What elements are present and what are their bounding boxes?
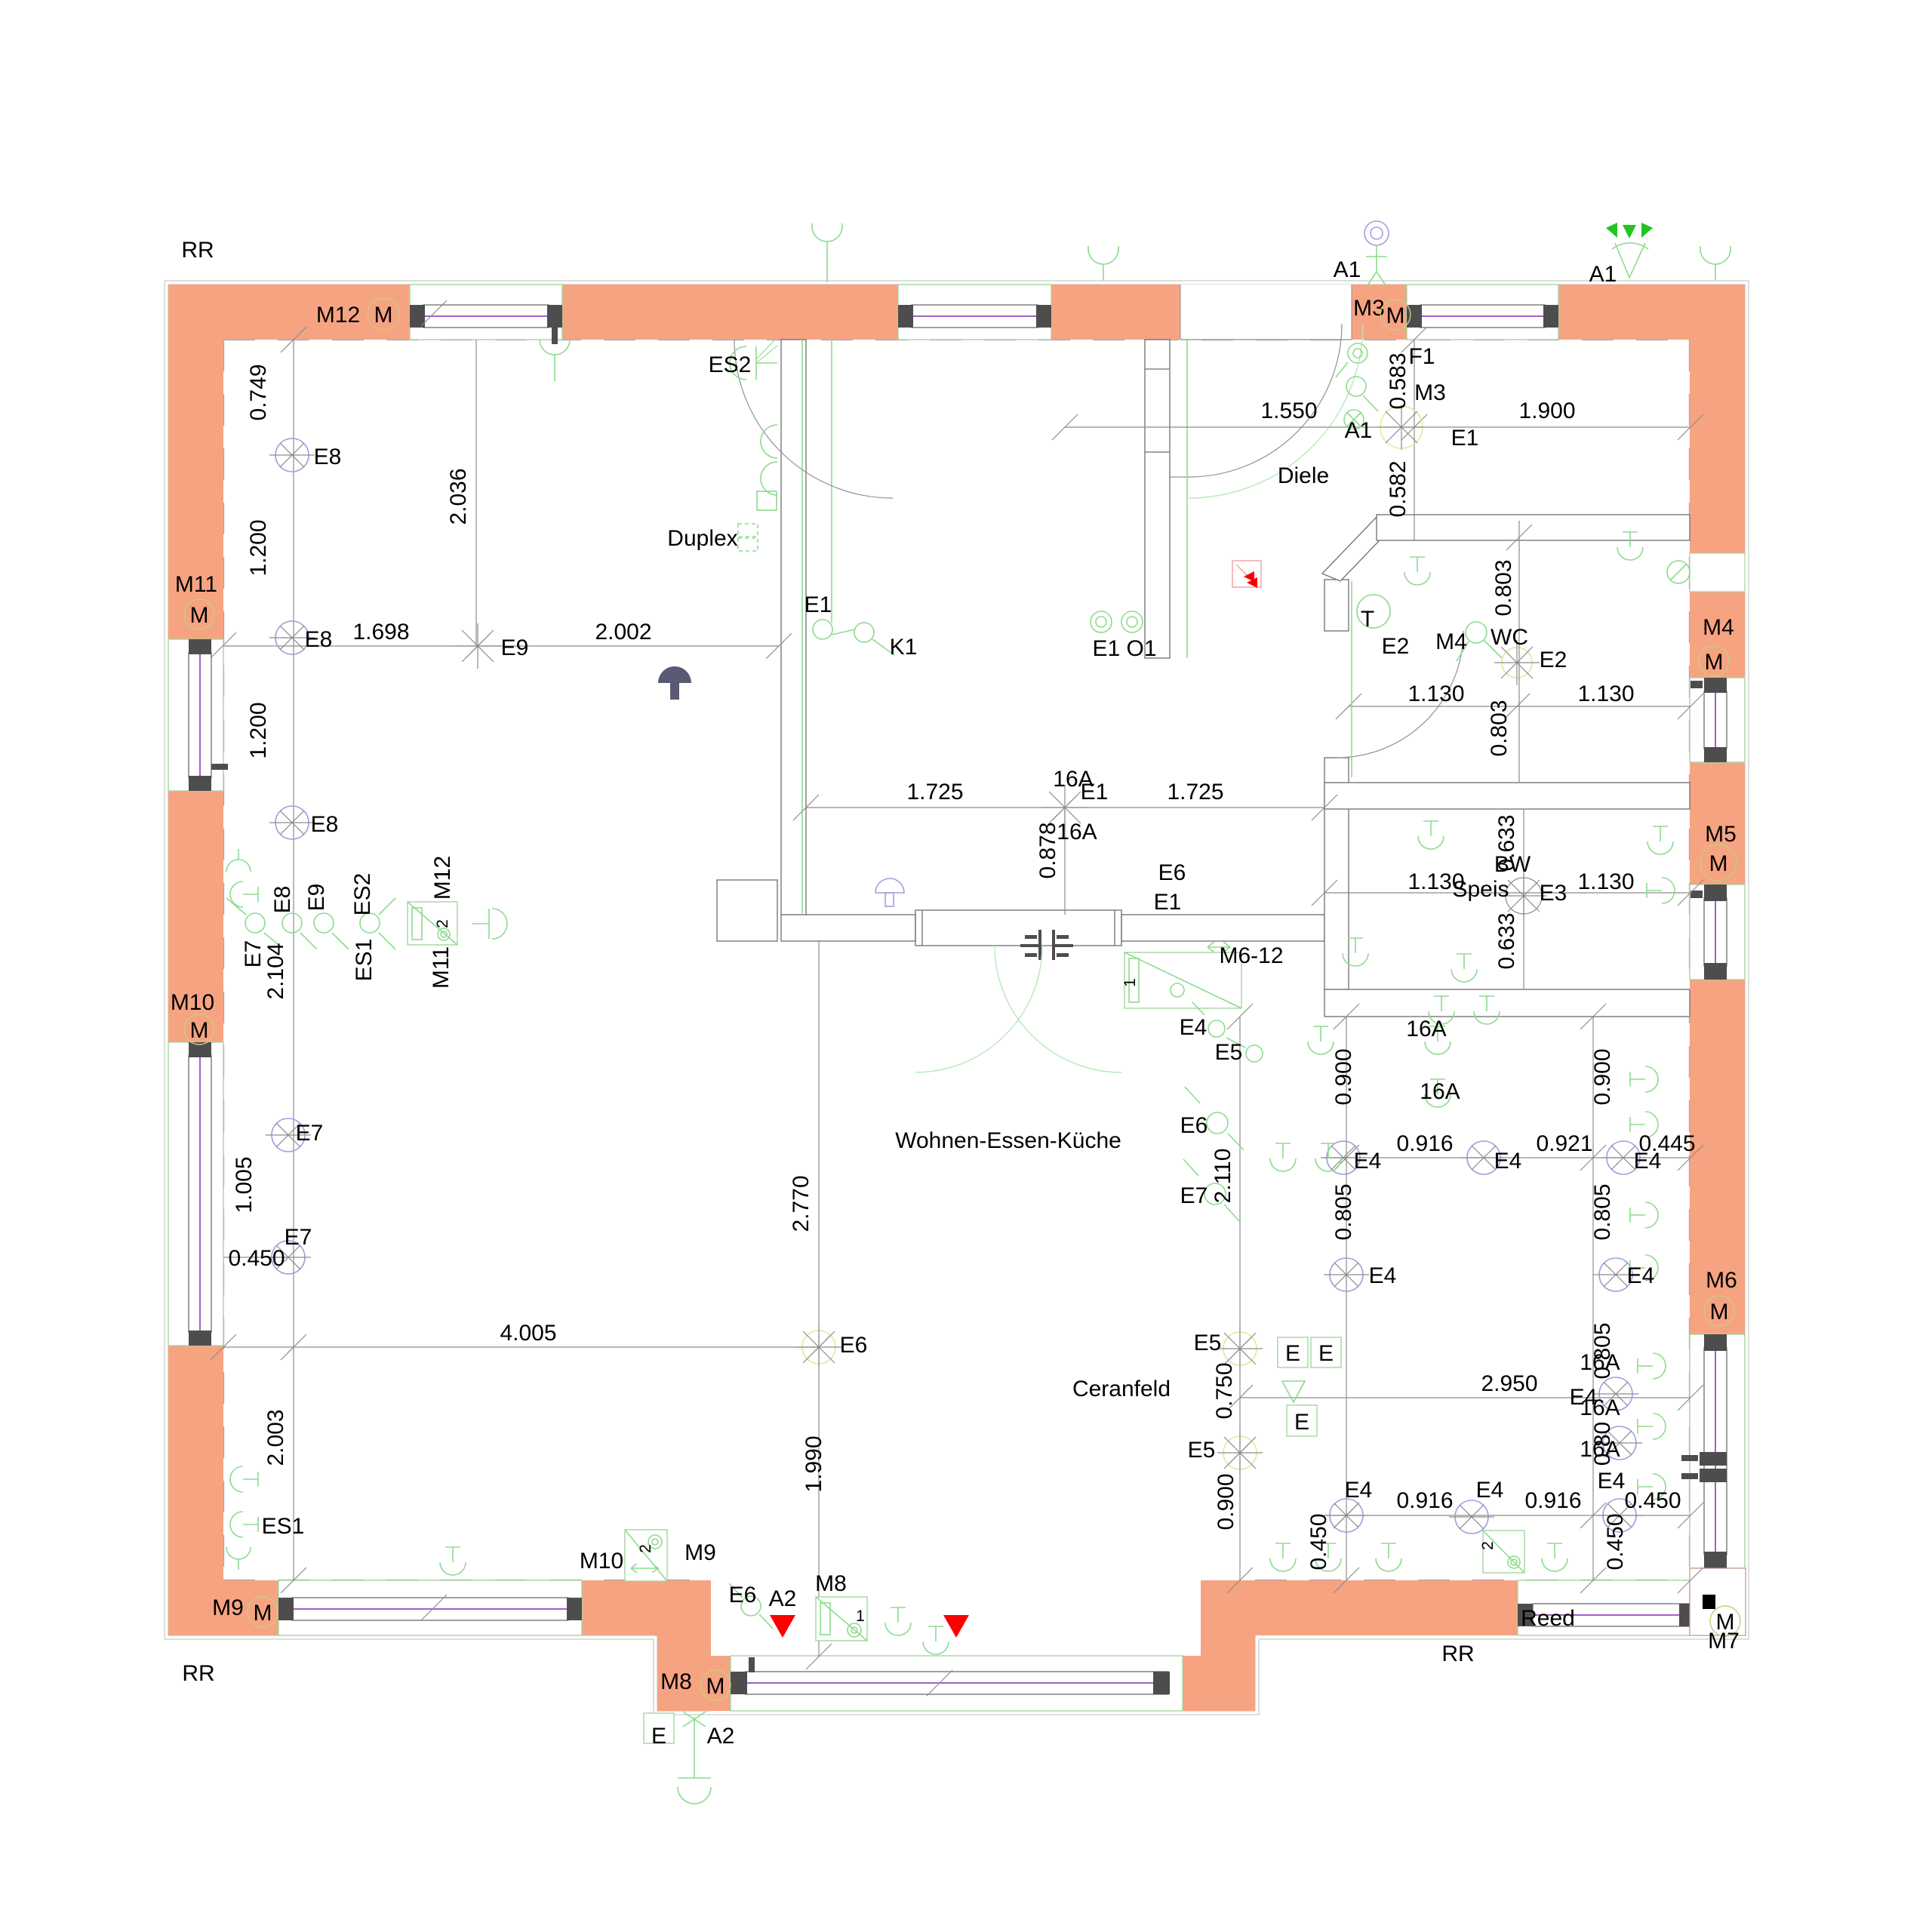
svg-text:A1: A1 (1345, 418, 1373, 443)
svg-text:T: T (1361, 607, 1374, 632)
svg-text:2: 2 (434, 919, 451, 928)
svg-text:0.900: 0.900 (1590, 1048, 1615, 1105)
svg-text:16A: 16A (1057, 820, 1097, 844)
svg-text:E4: E4 (1345, 1478, 1373, 1503)
svg-text:0.916: 0.916 (1524, 1488, 1581, 1513)
svg-text:16A: 16A (1053, 767, 1093, 792)
svg-text:1.130: 1.130 (1407, 869, 1464, 894)
svg-text:WC: WC (1491, 625, 1528, 650)
svg-text:M8: M8 (660, 1669, 692, 1694)
svg-text:E8: E8 (270, 886, 295, 914)
svg-text:E4: E4 (1627, 1263, 1655, 1288)
svg-text:Duplex: Duplex (667, 526, 737, 551)
svg-text:0.916: 0.916 (1396, 1488, 1453, 1513)
svg-text:M5: M5 (1705, 822, 1737, 847)
svg-text:E7: E7 (296, 1121, 324, 1146)
svg-text:1.005: 1.005 (232, 1156, 257, 1213)
svg-text:2.770: 2.770 (789, 1175, 814, 1232)
svg-text:2.950: 2.950 (1481, 1371, 1537, 1396)
svg-text:2: 2 (637, 1544, 654, 1553)
svg-text:16A: 16A (1580, 1395, 1620, 1420)
svg-text:A1: A1 (1589, 262, 1617, 287)
svg-text:0.921: 0.921 (1536, 1131, 1592, 1156)
svg-text:RR: RR (181, 238, 214, 263)
svg-text:E8: E8 (311, 812, 339, 837)
svg-text:M12: M12 (430, 856, 455, 900)
svg-text:E: E (1285, 1341, 1300, 1366)
svg-text:E4: E4 (1354, 1149, 1382, 1174)
svg-text:E7: E7 (241, 940, 266, 968)
svg-text:M11: M11 (175, 572, 217, 597)
svg-text:M: M (706, 1674, 725, 1699)
svg-text:0.803: 0.803 (1487, 700, 1512, 756)
svg-text:E9: E9 (304, 884, 329, 912)
svg-text:M12: M12 (316, 303, 360, 328)
svg-text:E6: E6 (840, 1333, 868, 1358)
svg-text:E5: E5 (1215, 1040, 1243, 1065)
svg-text:Diele: Diele (1278, 463, 1329, 488)
svg-text:16A: 16A (1580, 1350, 1620, 1375)
svg-text:2: 2 (1479, 1541, 1497, 1550)
svg-text:1.900: 1.900 (1518, 398, 1575, 423)
svg-text:0.916: 0.916 (1396, 1131, 1453, 1156)
svg-text:M: M (1710, 1300, 1729, 1324)
svg-text:E2: E2 (1382, 634, 1410, 659)
svg-text:1.698: 1.698 (352, 620, 409, 645)
svg-text:Reed: Reed (1521, 1606, 1575, 1631)
svg-text:M: M (254, 1601, 272, 1626)
svg-text:1.130: 1.130 (1577, 869, 1634, 894)
svg-text:M: M (190, 1018, 209, 1043)
svg-text:M: M (1705, 650, 1724, 675)
svg-text:2.110: 2.110 (1211, 1149, 1235, 1204)
svg-text:M: M (190, 603, 209, 628)
svg-text:E1: E1 (1451, 426, 1479, 451)
svg-text:M4: M4 (1703, 615, 1734, 640)
svg-text:1.990: 1.990 (801, 1435, 826, 1492)
svg-text:1.200: 1.200 (246, 519, 271, 576)
svg-text:1.130: 1.130 (1577, 681, 1634, 706)
svg-text:0.450: 0.450 (1624, 1488, 1681, 1513)
svg-text:M6-12: M6-12 (1219, 943, 1283, 968)
svg-text:0.80: 0.80 (1590, 1422, 1615, 1466)
svg-text:0.582: 0.582 (1386, 460, 1411, 517)
svg-text:M11: M11 (429, 946, 454, 989)
svg-text:4.005: 4.005 (500, 1321, 556, 1346)
svg-text:0.445: 0.445 (1638, 1131, 1695, 1156)
svg-text:E2: E2 (1540, 648, 1567, 672)
svg-text:E5: E5 (1188, 1438, 1216, 1463)
svg-text:0.750: 0.750 (1212, 1362, 1237, 1419)
svg-text:0.805: 0.805 (1331, 1183, 1356, 1240)
svg-text:E1 O1: E1 O1 (1092, 636, 1156, 661)
svg-text:E: E (1318, 1341, 1334, 1366)
svg-text:E5: E5 (1194, 1331, 1222, 1355)
svg-text:M9: M9 (212, 1595, 244, 1620)
svg-text:E7: E7 (1180, 1183, 1208, 1208)
svg-text:1: 1 (856, 1607, 865, 1625)
svg-text:E4: E4 (1369, 1263, 1397, 1288)
svg-text:0.900: 0.900 (1331, 1048, 1356, 1105)
svg-text:M: M (1709, 851, 1728, 876)
svg-text:ES1: ES1 (352, 939, 377, 982)
svg-text:2.003: 2.003 (263, 1409, 288, 1466)
svg-text:RR: RR (1441, 1641, 1474, 1666)
svg-text:0.749: 0.749 (246, 364, 271, 420)
svg-text:A1: A1 (1334, 257, 1361, 282)
svg-text:1.200: 1.200 (246, 702, 271, 758)
svg-text:2.002: 2.002 (595, 620, 651, 645)
svg-text:2.104: 2.104 (263, 943, 288, 999)
svg-text:E8: E8 (314, 445, 342, 469)
svg-text:Ceranfeld: Ceranfeld (1072, 1377, 1171, 1401)
svg-text:E3: E3 (1540, 881, 1567, 906)
svg-text:RR: RR (182, 1661, 214, 1686)
svg-text:E1: E1 (1154, 890, 1182, 915)
svg-text:M3: M3 (1414, 380, 1446, 405)
svg-text:M8: M8 (815, 1571, 847, 1596)
svg-text:E: E (651, 1724, 666, 1749)
svg-text:M4: M4 (1435, 629, 1467, 654)
svg-text:E6: E6 (1158, 860, 1186, 885)
svg-text:E: E (1294, 1410, 1309, 1435)
svg-text:0.583: 0.583 (1386, 352, 1411, 409)
svg-text:K1: K1 (890, 635, 918, 660)
svg-text:0.900: 0.900 (1214, 1473, 1238, 1530)
svg-text:E4: E4 (1180, 1015, 1207, 1040)
svg-text:M10: M10 (171, 990, 214, 1015)
svg-text:0.633: 0.633 (1494, 814, 1519, 871)
svg-text:E4: E4 (1598, 1469, 1626, 1494)
svg-text:0.805: 0.805 (1590, 1183, 1615, 1240)
svg-text:0.450: 0.450 (228, 1246, 285, 1271)
svg-text:E1: E1 (804, 592, 832, 617)
svg-text:ES2: ES2 (350, 873, 375, 916)
svg-text:E8: E8 (305, 627, 333, 652)
svg-text:M9: M9 (685, 1540, 716, 1565)
svg-text:1.550: 1.550 (1260, 398, 1317, 423)
svg-text:M7: M7 (1708, 1629, 1740, 1654)
svg-text:E4: E4 (1494, 1149, 1522, 1174)
svg-text:M10: M10 (580, 1549, 623, 1574)
svg-text:1: 1 (1121, 978, 1139, 987)
svg-text:16A: 16A (1420, 1079, 1460, 1104)
svg-text:1.725: 1.725 (1167, 780, 1223, 804)
svg-text:Wohnen-Essen-Küche: Wohnen-Essen-Küche (895, 1128, 1121, 1153)
svg-text:0.633: 0.633 (1494, 912, 1519, 969)
svg-text:A2: A2 (769, 1586, 797, 1611)
svg-text:M: M (1386, 303, 1405, 328)
svg-text:E7: E7 (285, 1225, 312, 1250)
svg-text:A2: A2 (707, 1724, 735, 1749)
svg-text:E6: E6 (729, 1583, 757, 1607)
svg-text:2.036: 2.036 (446, 468, 471, 525)
svg-text:M: M (374, 303, 393, 328)
svg-text:1.130: 1.130 (1407, 681, 1464, 706)
svg-text:0.450: 0.450 (1603, 1513, 1628, 1570)
svg-text:1.725: 1.725 (906, 780, 963, 804)
svg-text:E4: E4 (1476, 1478, 1504, 1503)
svg-text:ES1: ES1 (262, 1514, 305, 1539)
svg-text:0.450: 0.450 (1306, 1513, 1331, 1570)
svg-text:M6: M6 (1706, 1268, 1737, 1293)
svg-text:F1: F1 (1408, 344, 1435, 369)
svg-text:ES2: ES2 (709, 352, 752, 377)
svg-text:E6: E6 (1180, 1113, 1208, 1138)
svg-text:E9: E9 (501, 635, 529, 660)
svg-text:0.803: 0.803 (1491, 559, 1516, 616)
svg-text:16A: 16A (1406, 1017, 1446, 1041)
